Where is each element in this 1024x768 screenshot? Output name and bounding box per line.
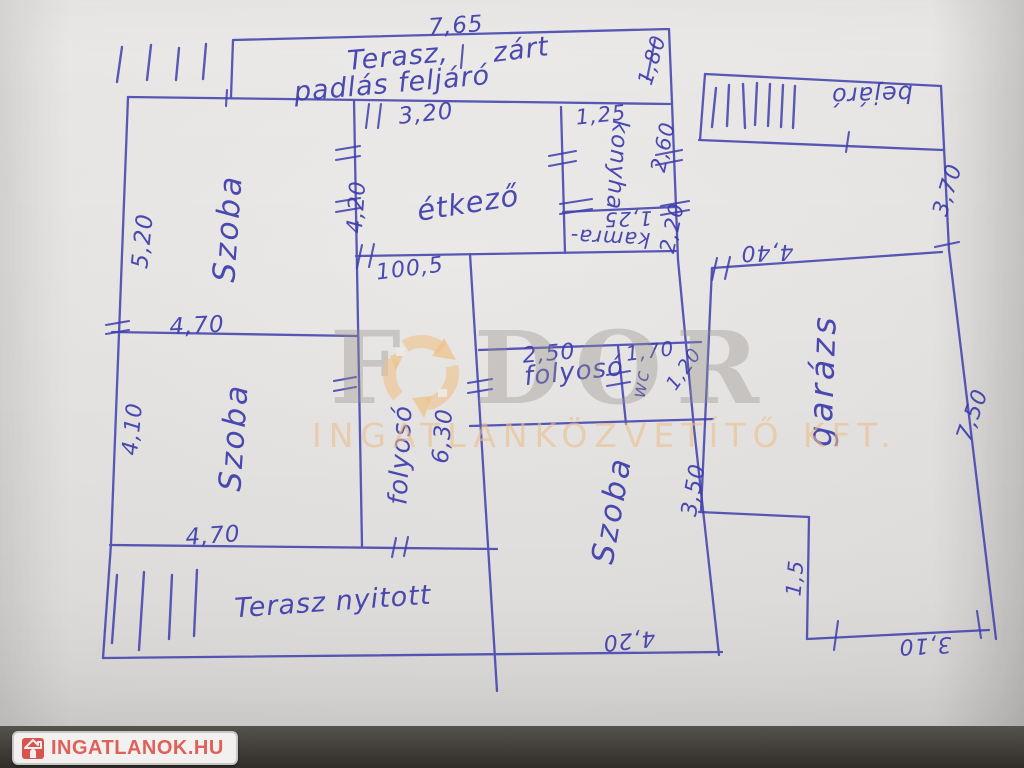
- dim-szoba-divider: 4,70: [169, 312, 226, 341]
- label-bejaro: bejáró: [831, 80, 914, 111]
- paper-sheet: Terasz,zártpadlás feljáróétkezőkonyhakam…: [0, 0, 1024, 726]
- watermark-subtitle: INGATLANKÖZVETÍTŐ KFT.: [312, 416, 1024, 455]
- dim-garazs-bottom: 3,10: [898, 631, 952, 659]
- dim-garazs-step: 1,5: [781, 559, 808, 597]
- footer-bar: INGATLANOK.HU: [0, 726, 1024, 768]
- site-logo-pill: INGATLANOK.HU: [12, 731, 238, 765]
- label-szoba-top-left: Szoba: [206, 173, 249, 284]
- site-name: INGATLANOK.HU: [51, 737, 224, 760]
- dim-etkezo-height: 4,20: [343, 180, 372, 235]
- dim-garazs-width: 4,40: [740, 239, 794, 266]
- dim-terasz-width: 7,65: [428, 11, 485, 41]
- dim-szoba2-width: 4,70: [185, 521, 242, 551]
- watermark-brand-right: DOR: [474, 318, 773, 418]
- floorplan-photo: Terasz,zártpadlás feljáróétkezőkonyhakam…: [0, 0, 1024, 768]
- house-icon: [22, 736, 44, 760]
- dim-kamra-width: 1,25: [603, 206, 652, 232]
- watermark-arrows-logo: [372, 326, 468, 422]
- label-szoba-bottom-left: Szoba: [212, 382, 255, 493]
